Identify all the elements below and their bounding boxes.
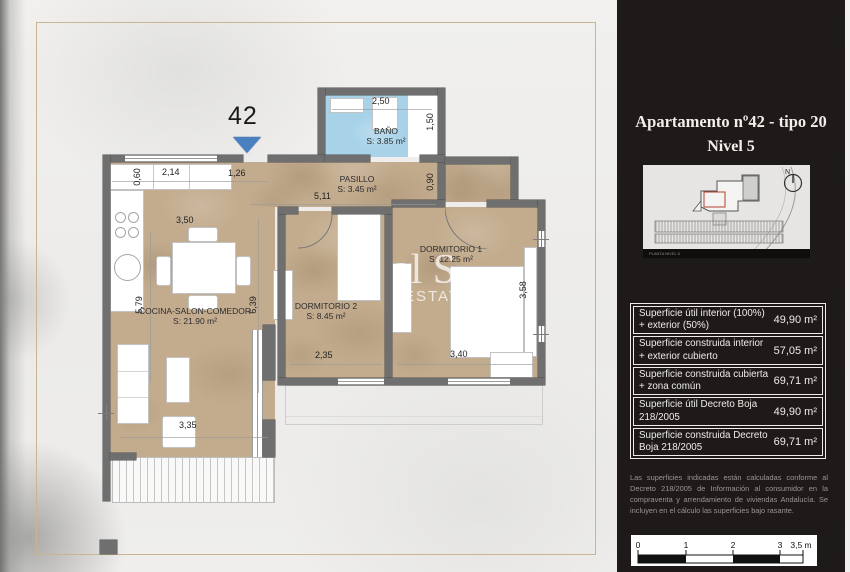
room-area: S: 21.90 m² [125, 316, 265, 326]
kitchen-counter-left [110, 190, 144, 312]
burner-icon [128, 227, 139, 238]
scale-tick-label: 3 [778, 540, 783, 550]
dimension-label: 2,35 [315, 350, 333, 360]
burner-icon [115, 227, 126, 238]
site-plan-inset: N PLANTA NIVEL 5 [643, 165, 810, 258]
dimension-label: 2,14 [162, 167, 180, 177]
survey-cross-icon [98, 405, 114, 421]
scale-tick-label: 0 [636, 540, 641, 550]
watermark-text: ESTATE [404, 288, 472, 305]
unit-number-label: 42 [228, 102, 258, 131]
scale-tick-label: 3,5 m [790, 540, 811, 550]
burner-icon [128, 212, 139, 223]
dorm2-wardrobe [337, 211, 381, 301]
room-name: BAÑO [326, 126, 446, 136]
room-label-bath: BAÑO S: 3.85 m² [326, 126, 446, 146]
survey-cross-icon [533, 326, 549, 342]
door-arc [298, 214, 334, 250]
paper-background: 0,60 2,14 1,26 3,50 5,79 6,39 5,11 0,90 … [0, 0, 850, 572]
dimension-label: 3,35 [179, 420, 197, 430]
inset-caption: PLANTA NIVEL 5 [649, 251, 681, 256]
room-area: S: 3.85 m² [326, 136, 446, 146]
dimension-label: 3,50 [176, 215, 194, 225]
info-panel: Apartamento nº42 - tipo 20 Nivel 5 [617, 0, 845, 572]
dimension-line [398, 364, 534, 365]
dining-chair [156, 256, 171, 286]
surface-label: Superficie construida cubierta + zona co… [639, 369, 769, 393]
window [338, 378, 384, 385]
panel-title: Apartamento nº42 - tipo 20 [617, 112, 845, 132]
wall [538, 200, 545, 385]
table-row: Superficie construida Decreto Boja 218/2… [633, 428, 823, 456]
table-row: Superficie útil Decreto Boja 218/2005 49… [633, 397, 823, 425]
table-row: Superficie construida cubierta + zona co… [633, 367, 823, 395]
wall [487, 200, 545, 207]
surface-label: Superficie construida interior + exterio… [639, 338, 769, 362]
wall [268, 155, 325, 162]
window [448, 378, 510, 385]
disclaimer-text: Las superficies indicadas están calculad… [630, 472, 828, 516]
dimension-label: 2,50 [372, 96, 390, 106]
wall [420, 155, 445, 162]
dining-chair [236, 256, 251, 286]
survey-cross-icon [533, 231, 549, 247]
bath-sink [330, 98, 364, 113]
wall [385, 207, 392, 385]
room-name: COCINA-SALON-COMEDOR [125, 306, 265, 316]
wall [332, 207, 392, 214]
coffee-table [166, 357, 190, 403]
kitchen-sink-icon [114, 254, 141, 281]
scale-tick-label: 2 [731, 540, 736, 550]
surface-table: Superficie útil interior (100%) + exteri… [630, 303, 826, 459]
dining-chair [188, 227, 218, 242]
dorm1-bed [450, 266, 524, 358]
dining-table [172, 242, 236, 294]
surface-value: 69,71 m² [774, 375, 817, 387]
terrace-deck [112, 457, 275, 503]
wall [318, 88, 445, 95]
scale-bar: 0 1 2 3 3,5 m [631, 535, 817, 566]
window [125, 155, 217, 162]
wall [445, 157, 518, 164]
scale-tick-label: 1 [684, 540, 689, 550]
dimension-label: 0,60 [132, 168, 142, 186]
room-label-pasillo: PASILLO S: 3.45 m² [297, 174, 417, 194]
wall [263, 420, 275, 457]
surface-label: Superficie construida Decreto Boja 218/2… [639, 430, 769, 454]
door-arc [445, 207, 487, 249]
burner-icon [115, 212, 126, 223]
room-label-cocina: COCINA-SALON-COMEDOR S: 21.90 m² [125, 306, 265, 326]
dimension-line [332, 109, 432, 110]
surface-value: 49,90 m² [774, 314, 817, 326]
table-row: Superficie útil interior (100%) + exteri… [633, 306, 823, 334]
surface-label: Superficie útil Decreto Boja 218/2005 [639, 399, 769, 423]
surface-value: 69,71 m² [774, 436, 817, 448]
terrace-balcony [285, 385, 543, 425]
stove-burners-icon [115, 212, 139, 240]
room-name: PASILLO [297, 174, 417, 184]
watermark-text: al S [392, 246, 456, 294]
floor-vestibule [445, 164, 515, 202]
dimension-label: 3,40 [450, 349, 468, 359]
panel-subtitle: Nivel 5 [617, 138, 845, 156]
dimension-label: 0,90 [425, 173, 435, 191]
entrance-arrow-icon [233, 137, 261, 153]
dorm1-bench [490, 352, 533, 378]
dimension-line [120, 437, 268, 438]
dimension-line [250, 204, 436, 205]
room-name: DORMITORIO 2 [266, 301, 386, 311]
wall [110, 453, 136, 460]
wall [318, 88, 325, 162]
room-area: S: 3.45 m² [297, 184, 417, 194]
surface-value: 57,05 m² [774, 345, 817, 357]
dimension-label: 3,58 [518, 281, 528, 299]
north-label: N [785, 169, 790, 176]
room-label-dormitorio2: DORMITORIO 2 S: 8.45 m² [266, 301, 386, 321]
wall [263, 325, 275, 380]
dimension-label: 1,26 [228, 168, 246, 178]
dimension-line [290, 364, 382, 365]
wall-pillar [100, 540, 117, 554]
surface-value: 49,90 m² [774, 406, 817, 418]
wall [278, 207, 298, 214]
table-row: Superficie construida interior + exterio… [633, 336, 823, 364]
room-area: S: 8.45 m² [266, 311, 386, 321]
wall [438, 88, 445, 207]
surface-label: Superficie útil interior (100%) + exteri… [639, 308, 769, 332]
sofa [117, 344, 149, 424]
site-plan-drawing: N PLANTA NIVEL 5 [643, 165, 810, 258]
wall [103, 155, 110, 501]
wall [325, 155, 370, 162]
wall [278, 207, 285, 385]
